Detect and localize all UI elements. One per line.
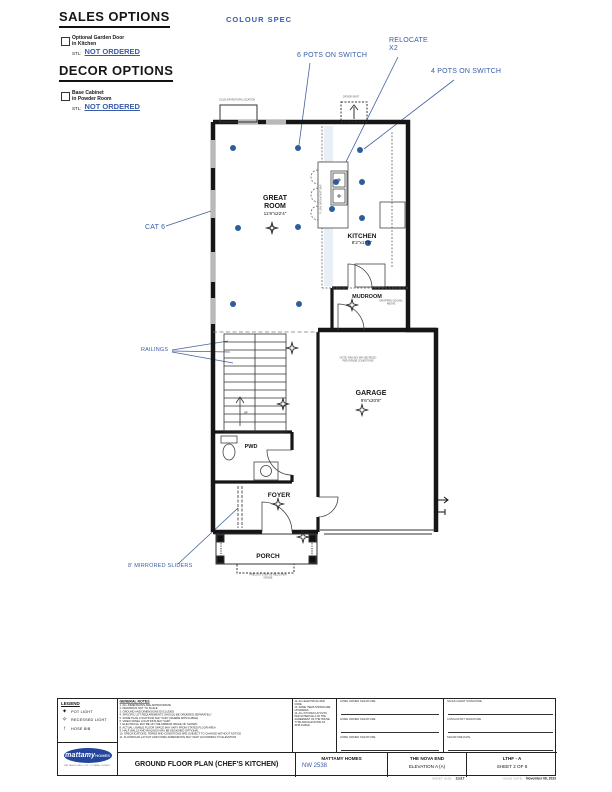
side-notes-lines: 12. ALL ELECTRICAL PER CODE13. SOME ITEM… (295, 700, 333, 727)
signature-field[interactable]: SALES AGENT SIGNATURE (444, 699, 557, 717)
signature-field[interactable]: SIGNATURE DATE (444, 735, 557, 752)
annotation-railings: RAILINGS (141, 347, 168, 353)
general-notes-cell: GENERAL NOTES 1. ALL DIMENSIONS ARE APPR… (118, 699, 293, 752)
legend-recessed-light-label: RECESSED LIGHT (71, 718, 107, 722)
caption-garage-note: NOTE: RAILING MAY BE REQ'D PER GRADE CON… (338, 357, 378, 363)
annotation-relocate-line2: X2 (389, 45, 428, 53)
kitchen-dims: 8'2"x17'6" (348, 240, 377, 245)
sales-option-checkbox[interactable] (61, 37, 70, 46)
legend-pot-light-label: POT LIGHT (71, 710, 93, 714)
signature-date-label: SIGNATURE DATE (447, 736, 470, 739)
mattamy-logo: mattamyHOMES (64, 748, 112, 763)
legend-hose-bib-label: HOSE BIB (71, 727, 91, 731)
sales-agent-signature-label: SALES AGENT SIGNATURE (447, 700, 482, 703)
caption-mudroom-note: DROPPED CEILING ABOVE (376, 300, 406, 306)
issue-date-value: November 06, 2023 (526, 777, 556, 781)
porch-label: PORCH (256, 553, 279, 560)
signature-field[interactable]: HOME OWNER SIGNATURE (337, 699, 443, 717)
annotation-4-pots: 4 POTS ON SWITCH (431, 68, 501, 76)
pot-light-icon: ✦ (61, 709, 68, 715)
colour-spec-label: COLOUR SPEC (226, 16, 292, 25)
caption-top-left: COLD AIR RETURN LOCATION (219, 99, 255, 102)
garage-dims: 9'6"x20'8" (356, 398, 387, 403)
pwd-fixtures (221, 436, 278, 480)
annotation-relocate-line1: RELOCATE (389, 37, 428, 45)
series-cell: LTHF - A SHEET 2 OF 6 (467, 753, 557, 777)
kitchen-label: KITCHEN (348, 233, 377, 240)
plan-number: NW 2538 (296, 763, 387, 769)
sheet-footer: SHEET SIZE 11x17 ISSUE DATE November 06,… (330, 777, 556, 781)
garage-door (320, 530, 436, 534)
floor-plan-drawing (0, 0, 612, 792)
issue-date-label: ISSUE DATE (502, 777, 522, 781)
home-owner-signature-label: HOME OWNER SIGNATURE (340, 718, 375, 721)
title-block-right: GENERAL NOTES 1. ALL DIMENSIONS ARE APPR… (118, 699, 557, 775)
logo-sub-text: HOMES (95, 753, 110, 758)
note-line: 11. FLOORPLAN LAYOUT AND FINISH DIMENSIO… (120, 736, 287, 739)
drawing-sheet: SALES OPTIONS Optional Garden Door in Ki… (0, 0, 612, 792)
signature-field[interactable]: HOME OWNER SIGNATURE (337, 735, 443, 752)
annotation-mirrored-sliders: 8' MIRRORED SLIDERS (128, 563, 192, 569)
caption-stairs-up: UP (244, 412, 247, 415)
pot-light-dots (230, 145, 371, 307)
legend-heading: LEGEND (61, 701, 114, 706)
leader-lines (166, 57, 454, 564)
drawing-title: GROUND FLOOR PLAN (CHEF'S KITCHEN) (118, 753, 295, 777)
sales-options-heading: SALES OPTIONS (59, 10, 170, 28)
hose-bib-legend-icon: ↑ (61, 726, 68, 732)
decor-stl-label: STL: (72, 106, 82, 111)
garage-label: GARAGE (356, 390, 387, 398)
hose-bib-icon (437, 497, 448, 515)
title-block-left: LEGEND ✦ POT LIGHT ✧ RECESSED LIGHT ↑ HO… (58, 699, 118, 775)
great-room-label-1: GREAT (263, 195, 287, 203)
home-owner-signature-label: HOME OWNER SIGNATURE (340, 736, 375, 739)
title-block: LEGEND ✦ POT LIGHT ✧ RECESSED LIGHT ↑ HO… (57, 698, 556, 776)
sheet-number: SHEET 2 OF 6 (467, 764, 557, 769)
recessed-light-icon: ✧ (61, 717, 68, 723)
caption-breakfast-bar: FLUSH BREAKFAST BAR (320, 185, 323, 214)
logo-address-lines: MATTAMYHOMES.COM · OTTAWA, ONTARIO (64, 764, 110, 767)
closet-sliders (238, 486, 242, 528)
side-notes-cell: 12. ALL ELECTRICAL PER CODE13. SOME ITEM… (293, 699, 337, 752)
home-owner-signature-label: HOME OWNER SIGNATURE (340, 700, 375, 703)
builder-logo: mattamyHOMES MATTAMYHOMES.COM · OTTAWA, … (58, 743, 117, 775)
builder-name: MATTAMY HOMES (296, 756, 387, 761)
drawing-title-cell: GROUND FLOOR PLAN (CHEF'S KITCHEN) (118, 753, 296, 777)
series-name: LTHF - A (467, 756, 557, 761)
great-room-label-2: ROOM (263, 203, 287, 211)
stairs (224, 334, 286, 432)
model-name: THE NOVA END (388, 756, 466, 761)
logo-text: mattamy (65, 752, 95, 759)
annotation-cat6: CAT 6 (145, 224, 165, 232)
general-notes-lines: 1. ALL DIMENSIONS ARE APPROXIMATE2. DRAW… (120, 704, 287, 739)
caption-porch-note: PRECAST STEP AS REQ'D PER GRADE (248, 574, 288, 580)
sales-status: NOT ORDERED (85, 48, 140, 57)
note-line: 14. ALL KITCHEN LAYOUTS PER SCHEDULE A O… (295, 712, 333, 727)
legend: LEGEND ✦ POT LIGHT ✧ RECESSED LIGHT ↑ HO… (58, 699, 117, 743)
signature-field[interactable]: CONSULTANT SIGNATURE (444, 717, 557, 735)
owner-signatures-cell: HOME OWNER SIGNATURE HOME OWNER SIGNATUR… (337, 699, 444, 752)
foyer-label: FOYER (268, 492, 290, 499)
builder-cell: MATTAMY HOMES NW 2538 (296, 753, 388, 777)
windows (213, 122, 286, 324)
signature-field[interactable]: HOME OWNER SIGNATURE (337, 717, 443, 735)
decor-options-heading: DECOR OPTIONS (59, 64, 173, 82)
exterior-details (220, 102, 367, 122)
sales-stl-label: STL: (72, 51, 82, 56)
annotation-6-pots: 6 POTS ON SWITCH (297, 52, 367, 60)
elevation-name: ELEVATION A (A) (388, 764, 466, 769)
sheet-size-value: 11x17 (455, 777, 464, 781)
caption-vent: DRYER VENT (343, 96, 359, 99)
decor-option-checkbox[interactable] (61, 92, 70, 101)
sheet-size-label: SHEET SIZE (432, 777, 452, 781)
agent-signatures-cell: SALES AGENT SIGNATURE CONSULTANT SIGNATU… (444, 699, 557, 752)
decor-status: NOT ORDERED (85, 103, 140, 112)
pwd-label: PWD (245, 444, 258, 450)
great-room-dims: 11'9"x22'4" (263, 211, 287, 216)
general-notes-heading: GENERAL NOTES (120, 700, 287, 704)
model-cell: THE NOVA END ELEVATION A (A) (388, 753, 467, 777)
consultant-signature-label: CONSULTANT SIGNATURE (447, 718, 481, 721)
